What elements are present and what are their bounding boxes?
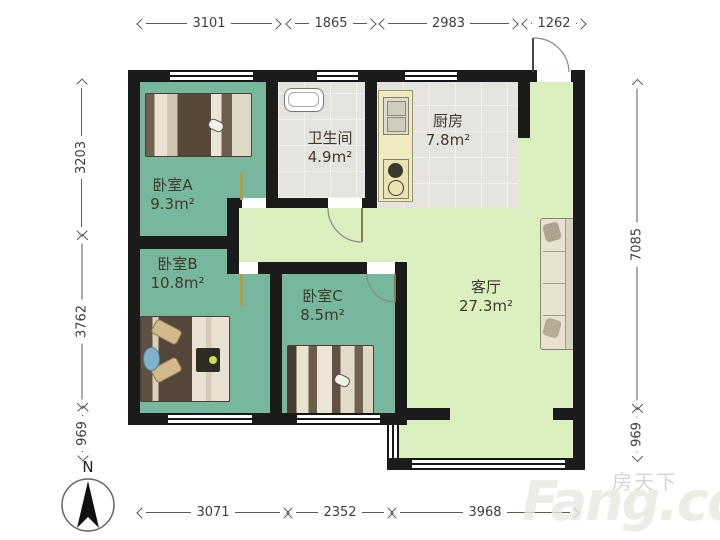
sofa-cushion <box>543 315 565 316</box>
dim-arrow-left <box>136 507 147 518</box>
bedroom-a-door-opening <box>242 198 266 208</box>
dim-arrow-right <box>575 18 586 29</box>
bedroom-a-label: 卧室A 9.3m² <box>130 176 215 214</box>
wall-segment <box>395 262 407 425</box>
dim-line <box>637 89 638 223</box>
bathtub <box>284 88 324 112</box>
sofa-cushion <box>543 251 565 252</box>
wall-segment <box>270 262 282 413</box>
dim-arrow-left <box>390 507 401 518</box>
wall-segment <box>404 408 450 420</box>
dimension-left-3: 969 <box>75 407 90 460</box>
bed-c <box>287 345 374 417</box>
dimension-left-2: 3762 <box>75 236 90 408</box>
lamp-icon <box>209 356 217 364</box>
room-name: 卧室B <box>135 255 220 274</box>
tub-inner <box>288 92 319 107</box>
burner <box>388 180 404 196</box>
window <box>168 413 252 425</box>
living-room-label: 客厅 27.3m² <box>443 278 529 316</box>
wall-segment <box>573 70 585 470</box>
dim-line <box>400 512 463 513</box>
wall-segment <box>387 458 412 470</box>
window <box>412 458 565 470</box>
room-name: 厨房 <box>405 112 491 131</box>
window <box>297 413 380 425</box>
dim-arrow-right <box>77 405 88 416</box>
room-area: 4.9m² <box>287 148 373 167</box>
dim-line <box>231 23 272 24</box>
dimension-top-3: 2983 <box>380 16 517 31</box>
wall-segment <box>266 198 328 208</box>
stove-icon <box>383 159 409 199</box>
dim-arrow-left <box>286 507 297 518</box>
dim-line <box>82 244 83 300</box>
dim-arrow-left <box>521 18 532 29</box>
wall-segment <box>457 70 537 82</box>
floor-plan: N 卧室A 9.3m² 卧室B 10.8m² 卧室C 8.5m² 卫生间 4.9… <box>0 0 720 540</box>
dimension-bottom-2: 2352 <box>288 505 392 520</box>
bedroom-b-door-leaf <box>240 274 243 306</box>
dim-value: 1865 <box>309 16 352 31</box>
dim-line <box>81 88 82 136</box>
dim-value: 1262 <box>532 16 575 31</box>
entry-floor <box>530 82 573 142</box>
dim-arrow-right <box>76 234 87 245</box>
room-area: 8.5m² <box>280 306 365 325</box>
bedroom-b-door-opening <box>239 262 258 274</box>
kitchen-label: 厨房 7.8m² <box>405 112 491 150</box>
room-area: 7.8m² <box>405 131 491 150</box>
dim-arrow-left <box>631 451 642 462</box>
hallway-floor <box>239 208 407 262</box>
dim-value: 7085 <box>630 223 645 266</box>
window <box>317 70 358 82</box>
dim-arrow-right <box>76 78 87 89</box>
dim-value: 3203 <box>74 136 89 179</box>
dim-arrow-right <box>507 18 518 29</box>
room-area: 27.3m² <box>443 297 529 316</box>
dim-value: 2352 <box>318 505 361 520</box>
room-name: 卧室C <box>280 287 365 306</box>
dim-arrow-right <box>631 79 642 90</box>
dim-arrow-right <box>270 18 281 29</box>
dim-line <box>146 512 191 513</box>
dim-line <box>637 266 638 400</box>
entry-door-opening <box>537 70 571 82</box>
bathroom-door-opening <box>328 198 362 208</box>
dimension-right-1: 7085 <box>630 81 645 409</box>
sofa-cushion <box>543 283 565 284</box>
dim-value: 3071 <box>191 505 234 520</box>
bathroom-label: 卫生间 4.9m² <box>287 129 373 167</box>
wall-segment <box>227 198 239 274</box>
dim-arrow-right <box>365 18 376 29</box>
bed-a <box>145 93 252 157</box>
dim-line <box>235 512 280 513</box>
wall-segment <box>518 82 530 138</box>
room-name: 客厅 <box>443 278 529 297</box>
dim-value: 3762 <box>75 300 90 343</box>
dim-line <box>388 23 427 24</box>
wall-segment <box>252 413 297 425</box>
room-area: 10.8m² <box>135 274 220 293</box>
dim-value: 2983 <box>427 16 470 31</box>
bedroom-c-door-opening <box>367 262 395 274</box>
dim-arrow-left <box>285 18 296 29</box>
wall-segment <box>553 408 573 420</box>
entry-door-arc <box>533 38 569 72</box>
burner <box>388 163 403 178</box>
dim-value: 3968 <box>463 505 506 520</box>
dim-value: 3101 <box>187 16 230 31</box>
compass-needle-icon <box>77 481 99 528</box>
sofa-pillow-icon <box>542 317 562 339</box>
dim-line <box>470 23 509 24</box>
compass-circle <box>62 479 114 531</box>
dim-line <box>146 23 187 24</box>
bedroom-b-label: 卧室B 10.8m² <box>135 255 220 293</box>
window <box>170 70 253 82</box>
entry-floor-2 <box>518 138 573 210</box>
dimension-top-1: 3101 <box>138 16 280 31</box>
dimension-bottom-1: 3071 <box>138 505 288 520</box>
balcony-floor <box>399 425 573 458</box>
room-name: 卫生间 <box>287 129 373 148</box>
dim-line <box>296 512 318 513</box>
wall-segment <box>565 458 585 470</box>
dimension-top-4: 1262 <box>523 16 585 31</box>
room-area: 9.3m² <box>130 195 215 214</box>
cushion-icon <box>143 347 160 371</box>
wall-segment <box>128 236 227 249</box>
sink-basin <box>387 117 406 132</box>
watermark-site: Fang.com <box>522 470 720 533</box>
room-name: 卧室A <box>130 176 215 195</box>
dim-value: 969 <box>630 417 645 452</box>
window <box>387 425 399 458</box>
bedroom-c-label: 卧室C 8.5m² <box>280 287 365 325</box>
bedroom-a-door-leaf <box>240 172 243 200</box>
wall-segment <box>253 70 317 82</box>
dimension-right-2: 969 <box>630 409 645 461</box>
dim-value: 969 <box>75 416 90 451</box>
dimension-left-1: 3203 <box>74 80 89 235</box>
dim-line <box>362 512 384 513</box>
sink-basin <box>387 101 406 116</box>
dim-arrow-left <box>136 18 147 29</box>
wall-segment <box>128 413 168 425</box>
wall-segment <box>358 70 405 82</box>
sofa-pillow-icon <box>542 221 562 243</box>
dim-line <box>81 179 82 227</box>
dim-arrow-left <box>77 450 88 461</box>
window <box>405 70 457 82</box>
dimension-top-2: 1865 <box>287 16 375 31</box>
sofa <box>540 218 575 350</box>
dim-arrow-left <box>378 18 389 29</box>
dim-line <box>82 343 83 399</box>
wall-segment <box>266 82 278 207</box>
